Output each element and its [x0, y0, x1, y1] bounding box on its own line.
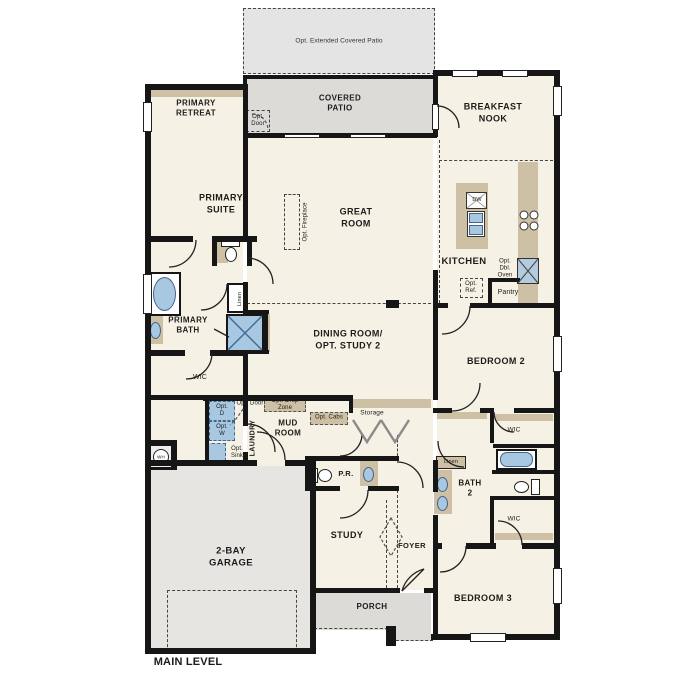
label-opt-drop-zone: Opt. Drop Zone — [272, 398, 299, 412]
label-opt-fireplace: Opt. Fireplace — [303, 202, 310, 241]
label-opt-ref: Opt. Ref. — [465, 281, 477, 295]
label-water-heater: WH — [157, 454, 165, 459]
room-label-wic-primary: WIC — [193, 374, 207, 382]
label-opt-dryer: Opt. D — [216, 404, 228, 418]
room-label-bedroom-2: BEDROOM 2 — [467, 356, 525, 368]
room-label-porch: PORCH — [357, 602, 388, 612]
room-label-primary-retreat: PRIMARY RETREAT — [176, 99, 216, 120]
room-label-bath-2: BATH 2 — [458, 479, 481, 500]
label-opt-dbl-oven: Opt. Dbl. Oven — [498, 259, 513, 280]
room-label-kitchen: KITCHEN — [441, 256, 486, 268]
room-label-wic-bedroom2: WIC — [508, 426, 521, 433]
label-linen-bath2: Linen — [444, 459, 458, 465]
room-label-primary-suite: PRIMARY SUITE — [199, 192, 243, 215]
room-label-breakfast-nook: BREAKFAST NOOK — [464, 101, 523, 124]
label-opt-door-laundry: Opt. Door — [237, 401, 264, 408]
room-label-primary-bath: PRIMARY BATH — [168, 316, 207, 337]
room-label-opt-extended-covered-patio: Opt. Extended Covered Patio — [295, 37, 382, 44]
room-label-wic-bedroom3: WIC — [508, 515, 521, 522]
room-label-powder-room: P.R. — [338, 469, 353, 479]
floor-plan: Opt. Extended Covered Patio COVERED PATI… — [0, 0, 687, 687]
label-opt-cabs: Opt. Cabs — [315, 415, 343, 422]
room-label-great-room: GREAT ROOM — [340, 206, 373, 229]
label-shower-seat: Seat — [263, 327, 269, 339]
room-label-foyer: FOYER — [398, 541, 426, 551]
label-opt-washer: Opt. W — [216, 424, 228, 438]
room-label-garage: 2-BAY GARAGE — [209, 546, 253, 571]
label-opt-sink: Opt. Sink — [231, 446, 243, 460]
room-label-storage: Storage — [360, 409, 383, 416]
plan-title: MAIN LEVEL — [154, 655, 223, 669]
room-label-study: STUDY — [331, 530, 364, 542]
room-label-laundry: LAUNDRY — [248, 420, 257, 457]
room-label-bedroom-3: BEDROOM 3 — [454, 593, 512, 605]
room-label-mud-room: MUD ROOM — [275, 419, 302, 440]
room-label-pantry: Pantry — [498, 289, 519, 297]
label-opt-door-patio: Opt. Door — [251, 114, 264, 128]
room-label-dining-room: DINING ROOM/ OPT. STUDY 2 — [313, 328, 382, 351]
label-linen-primary: Linen — [237, 292, 243, 306]
room-label-covered-patio: COVERED PATIO — [319, 94, 361, 115]
label-dishwasher: DW — [472, 197, 481, 203]
